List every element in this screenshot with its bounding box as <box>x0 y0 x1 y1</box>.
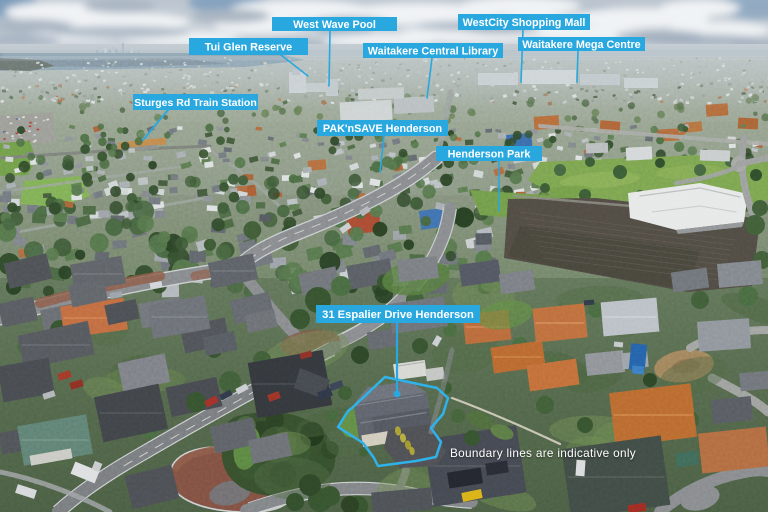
svg-text:Tui Glen Reserve: Tui Glen Reserve <box>205 41 292 53</box>
svg-text:West Wave Pool: West Wave Pool <box>293 19 376 31</box>
svg-text:PAK'nSAVE Henderson: PAK'nSAVE Henderson <box>323 123 442 135</box>
svg-text:Waitakere Central Library: Waitakere Central Library <box>368 45 498 57</box>
svg-text:Boundary lines are indicative: Boundary lines are indicative only <box>450 446 636 460</box>
svg-text:31 Espalier Drive Henderson: 31 Espalier Drive Henderson <box>322 309 474 321</box>
svg-text:Sturges Rd Train Station: Sturges Rd Train Station <box>134 97 257 109</box>
svg-text:Henderson Park: Henderson Park <box>448 148 532 160</box>
svg-text:WestCity Shopping Mall: WestCity Shopping Mall <box>463 17 586 29</box>
svg-text:Waitakere Mega Centre: Waitakere Mega Centre <box>522 39 640 51</box>
